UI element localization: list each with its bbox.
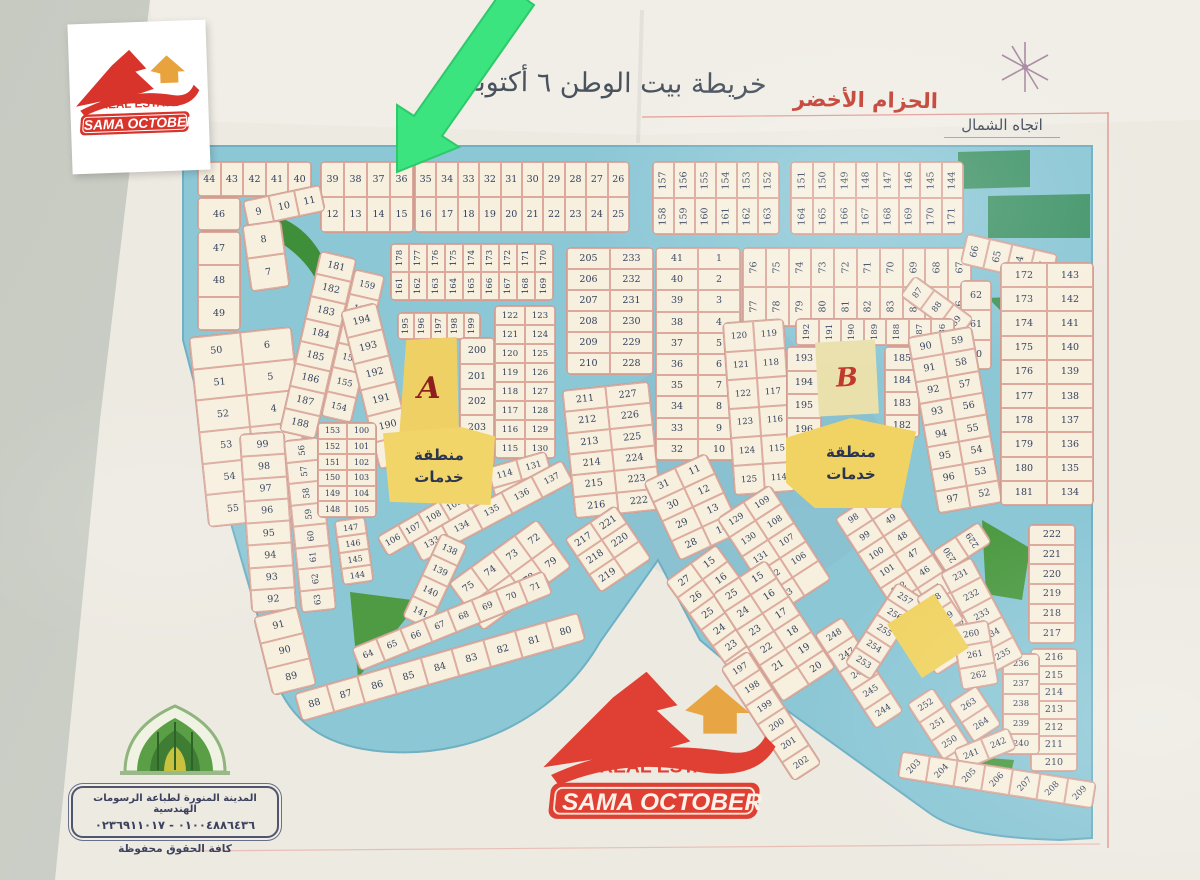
plot-cell: 183 [885,392,919,415]
plot-cell: 199 [464,313,480,339]
plot-cell: 38 [656,312,698,333]
stamp-rights-note: كافة الحقوق محفوظة [60,843,290,855]
plot-cell: 35 [415,162,436,197]
plot-cell: 208 [1036,774,1068,804]
plot-cell: 124 [731,436,763,467]
plot-cell: 25 [608,197,629,232]
plot-cell: 105 [347,501,376,517]
plot-cell: 178 [1001,408,1047,432]
plot-cell: 2 [698,269,740,290]
green-belt-label: الحزام الأخضر [788,87,943,114]
plot-cell: 147 [877,162,899,198]
plot-cell: 125 [525,344,555,363]
plot-cell: 150 [813,162,835,198]
plot-cell: 104 [347,486,376,502]
plot-cell: 175 [1001,336,1047,360]
plot-cell: 119 [753,319,785,350]
plot-cell: 70 [880,248,903,287]
plot-cell: 93 [249,565,294,590]
plot-cell: 23 [565,197,586,232]
stamp-shop-name: المدينة المنورة لطباعة الرسومات الهندسية [77,793,273,815]
plot-cell: 63 [300,587,336,612]
plot-cell: 206 [981,765,1013,795]
plot-cell: 37 [656,333,698,354]
service-area-b-line1: منطقة [826,441,876,464]
plot-cell: 43 [221,162,244,196]
plot-cell: 165 [813,198,835,234]
plot-cell: 101 [347,439,376,455]
plot-cell: 15 [390,197,413,232]
plot-cell: 172 [499,244,517,272]
plot-block: 1221231211241201251191261181271171281161… [494,305,556,459]
plot-cell: 74 [789,248,812,287]
plot-cell: 123 [729,407,761,438]
plot-cell: 18 [458,197,479,232]
plot-cell: 103 [347,470,376,486]
plot-cell: 49 [198,297,240,330]
plot-cell: 177 [1001,384,1047,408]
plot-cell: 21 [522,197,543,232]
plot-block: 195196197198199 [397,312,481,340]
plot-cell: 144 [942,162,964,198]
plot-cell: 38 [344,162,367,197]
plot-cell: 220 [1029,564,1075,584]
plot-cell: 233 [610,248,653,269]
plot-cell: 192 [796,319,819,345]
plot-block: 147146145144 [334,516,375,586]
plot-cell: 169 [535,272,553,300]
plot-cell: 36 [390,162,413,197]
plot-cell: 158 [653,198,674,234]
plot-cell: 75 [766,248,789,287]
logo-tagline: REAL ESTATE [599,755,730,777]
mosque-stamp-icon [120,698,230,778]
plot-cell: 154 [322,391,357,422]
plot-cell: 1 [698,248,740,269]
plot-cell: 141 [1047,311,1093,335]
plot-cell: 121 [495,325,525,344]
plot-cell: 200 [460,338,494,364]
plot-cell: 129 [525,420,555,439]
plot-cell: 134 [1047,481,1093,505]
plot-block: 157156155154153152158159160161162163 [652,161,780,235]
plot-cell: 41 [656,248,698,269]
plot-cell: 33 [458,162,479,197]
plot-cell: 169 [899,198,921,234]
plot-cell: 42 [243,162,266,196]
plot-cell: 171 [942,198,964,234]
service-area-a-line1: منطقة [414,444,464,467]
plot-cell: 19 [479,197,500,232]
plot-cell: 197 [431,313,447,339]
plot-block: 211227212226213225214224215223216222 [561,381,662,519]
plot-cell: 153 [737,162,758,198]
plot-block: 1781771761751741731721711701611621631641… [390,243,554,301]
plot-block: 1721431731421741411751401761391771381781… [1000,262,1094,506]
plot-cell: 102 [347,454,376,470]
plot-cell: 99 [240,432,285,457]
plot-cell: 139 [1047,360,1093,384]
plot-cell: 170 [920,198,942,234]
plot-block: 46 [197,197,241,231]
plot-block: 87 [241,220,290,293]
plot-cell: 124 [525,325,555,344]
plot-cell: 8 [243,221,285,259]
plot-cell: 34 [656,396,698,417]
logo-house-icon [685,685,750,734]
service-area-a-line2: خدمات [414,466,463,489]
plot-cell: 173 [1001,287,1047,311]
plot-cell: 120 [723,321,755,352]
plot-cell: 176 [1001,360,1047,384]
scanned-map-photo: 4443424140393837361213141535343332313029… [0,0,1200,880]
plot-cell: 219 [1029,584,1075,604]
plot-cell: 230 [610,311,653,332]
plot-cell: 3 [698,290,740,311]
plot-cell: 202 [460,389,494,415]
plot-cell: 157 [653,162,674,198]
plot-cell: 209 [567,332,610,353]
plot-cell: 180 [1001,457,1047,481]
plot-cell: 152 [318,439,347,455]
plot-cell: 97 [243,476,288,501]
plot-block: 474849 [197,231,241,331]
plot-cell: 162 [409,272,427,300]
plot-cell: 167 [856,198,878,234]
plot-cell: 195 [398,313,414,339]
plot-cell: 128 [525,401,555,420]
plot-cell: 174 [463,244,481,272]
plot-cell: 123 [525,306,555,325]
logo-brand-name: SAMA OCTOBER [562,789,762,816]
plot-cell: 164 [445,272,463,300]
plot-cell: 118 [755,348,787,379]
plot-cell: 172 [1001,263,1047,287]
plot-cell: 68 [925,248,948,287]
plot-cell: 52 [967,480,1002,507]
plot-cell: 195 [787,394,821,418]
plot-cell: 72 [834,248,857,287]
plot-cell: 94 [248,543,293,568]
plot-cell: 166 [481,272,499,300]
plot-cell: 205 [953,761,985,791]
plot-cell: 262 [959,662,998,689]
plot-cell: 228 [610,353,653,374]
plot-cell: 97 [935,486,970,513]
page-title: خريطة بيت الوطن ٦ أكتوبر [430,66,800,100]
brand-logo: REAL ESTATE SAMA OCTOBER [67,20,210,175]
plot-cell: 151 [318,454,347,470]
plot-cell: 175 [445,244,463,272]
print-shop-stamp: المدينة المنورة لطباعة الرسومات الهندسية… [60,698,290,855]
plot-cell: 229 [610,332,653,353]
plot-cell: 163 [758,198,779,234]
plot-cell: 196 [414,313,430,339]
zone-a-letter: A [417,371,440,406]
brand-logo-card: REAL ESTATE SAMA OCTOBER [67,20,210,175]
plot-cell: 121 [725,350,757,381]
plot-block: 3534333231302928272616171819202122232425 [414,161,630,233]
plot-cell: 178 [391,244,409,272]
plot-cell: 177 [409,244,427,272]
plot-cell: 136 [1047,432,1093,456]
plot-cell: 137 [1047,408,1093,432]
plot-cell: 117 [757,376,789,407]
plot-cell: 73 [811,248,834,287]
plot-cell: 207 [567,290,610,311]
plot-cell: 173 [481,244,499,272]
plot-cell: 231 [610,290,653,311]
plot-cell: 179 [1001,432,1047,456]
plot-cell: 148 [318,501,347,517]
plot-cell: 37 [367,162,390,197]
plot-cell: 222 [1029,525,1075,545]
plot-cell: 148 [856,162,878,198]
plot-cell: 207 [1009,769,1041,799]
plot-cell: 151 [791,162,813,198]
plot-cell: 120 [495,344,525,363]
plot-cell: 152 [758,162,779,198]
plot-cell: 160 [695,198,716,234]
plot-cell: 127 [525,382,555,401]
plot-cell: 47 [198,232,240,265]
plot-cell: 116 [495,420,525,439]
plot-cell: 209 [1064,778,1096,808]
plot-cell: 174 [1001,311,1047,335]
plot-cell: 48 [198,265,240,298]
plot-cell: 20 [501,197,522,232]
plot-cell: 217 [1029,623,1075,643]
plot-cell: 34 [436,162,457,197]
plot-cell: 149 [318,486,347,502]
plot-cell: 208 [567,311,610,332]
plot-cell: 126 [525,363,555,382]
plot-block: 1511501491481471461451441641651661671681… [790,161,964,235]
plot-cell: 76 [743,248,766,287]
plot-cell: 143 [1047,263,1093,287]
plot-cell: 122 [727,378,759,409]
plot-cell: 35 [656,375,698,396]
plot-cell: 36 [656,354,698,375]
brand-logo-watermark: REAL ESTATE SAMA OCTOBER [533,664,791,824]
plot-cell: 7 [247,253,289,291]
plot-cell: 155 [695,162,716,198]
plot-cell: 205 [567,248,610,269]
plot-cell: 16 [415,197,436,232]
plot-cell: 119 [495,363,525,382]
plot-cell: 115 [495,439,525,458]
plot-cell: 146 [899,162,921,198]
plot-cell: 39 [656,290,698,311]
plot-cell: 203 [898,752,930,782]
plot-cell: 14 [367,197,390,232]
plot-cell: 26 [608,162,629,197]
plot-cell: 204 [926,756,958,786]
plot-cell: 98 [241,454,286,479]
plot-cell: 168 [877,198,899,234]
plot-cell: 117 [495,401,525,420]
plot-cell: 162 [737,198,758,234]
plot-cell: 11 [294,185,325,216]
plot-cell: 237 [1003,674,1039,694]
plot-cell: 150 [318,470,347,486]
plot-cell: 218 [1029,604,1075,624]
plot-cell: 32 [479,162,500,197]
plot-cell: 28 [565,162,586,197]
plot-cell: 149 [834,162,856,198]
plot-cell: 163 [427,272,445,300]
plot-cell: 145 [920,162,942,198]
plot-cell: 39 [321,162,344,197]
plot-cell: 96 [245,498,290,523]
plot-cell: 62 [961,281,991,310]
plot-cell: 161 [716,198,737,234]
plot-cell: 17 [436,197,457,232]
plot-cell: 198 [447,313,463,339]
plot-block: 222221220219218217 [1028,524,1076,644]
plot-cell: 142 [1047,287,1093,311]
plot-cell: 166 [834,198,856,234]
plot-cell: 167 [499,272,517,300]
zone-b-letter: B [835,362,859,393]
plot-cell: 210 [1031,754,1077,771]
north-direction-label: اتجاه الشمال [944,116,1060,138]
logo-house-icon [150,55,185,84]
service-area-a: منطقة خدمات [383,427,495,505]
plot-cell: 31 [501,162,522,197]
stamp-text-box: المدينة المنورة لطباعة الرسومات الهندسية… [71,786,279,838]
plot-cell: 12 [321,197,344,232]
plot-cell: 176 [427,244,445,272]
plot-cell: 153 [318,423,347,439]
plot-cell: 144 [341,565,373,585]
plot-cell: 100 [347,423,376,439]
plot-cell: 170 [535,244,553,272]
plot-cell: 30 [522,162,543,197]
plot-cell: 168 [517,272,535,300]
plot-cell: 27 [586,162,607,197]
plot-cell: 164 [791,198,813,234]
plot-cell: 46 [198,198,240,230]
plot-cell: 181 [1001,481,1047,505]
plot-block: 205233206232207231208230209229210228 [566,247,654,375]
plot-block: 153100152101151102150103149104148105 [317,422,377,518]
logo-tagline: REAL ESTATE [99,96,179,112]
plot-cell: 138 [1047,384,1093,408]
plot-cell: 24 [586,197,607,232]
plot-block: 919089 [253,606,317,697]
plot-block: 3938373612131415 [320,161,414,233]
plot-cell: 210 [567,353,610,374]
plot-cell: 171 [517,244,535,272]
plot-cell: 118 [495,382,525,401]
stamp-phone-numbers: ٠١٠٠٤٨٨٦٤٣٦ - ٠٢٣٦٩١١٠١٧ [77,818,273,832]
plot-cell: 165 [463,272,481,300]
service-area-b-line2: خدمات [826,463,875,486]
plot-cell: 29 [543,162,564,197]
plot-cell: 40 [656,269,698,290]
plot-cell: 232 [610,269,653,290]
plot-cell: 188 [886,319,909,345]
plot-cell: 122 [495,306,525,325]
plot-cell: 159 [674,198,695,234]
plot-cell: 95 [246,520,291,545]
plot-cell: 201 [460,364,494,390]
plot-block: 120119121118122117123116124115125114 [722,318,796,496]
plot-cell: 161 [391,272,409,300]
service-zone-a: A [399,337,459,439]
plot-cell: 22 [543,197,564,232]
plot-cell: 140 [1047,336,1093,360]
plot-cell: 80 [546,613,585,649]
plot-cell: 71 [857,248,880,287]
plot-cell: 206 [567,269,610,290]
plot-cell: 135 [1047,457,1093,481]
plot-cell: 156 [674,162,695,198]
service-zone-b: B [815,339,879,416]
plot-cell: 238 [1003,694,1039,714]
plot-cell: 154 [716,162,737,198]
plot-cell: 221 [1029,545,1075,565]
plot-cell: 13 [344,197,367,232]
plot-cell: 32 [656,439,698,460]
plot-cell: 33 [656,418,698,439]
